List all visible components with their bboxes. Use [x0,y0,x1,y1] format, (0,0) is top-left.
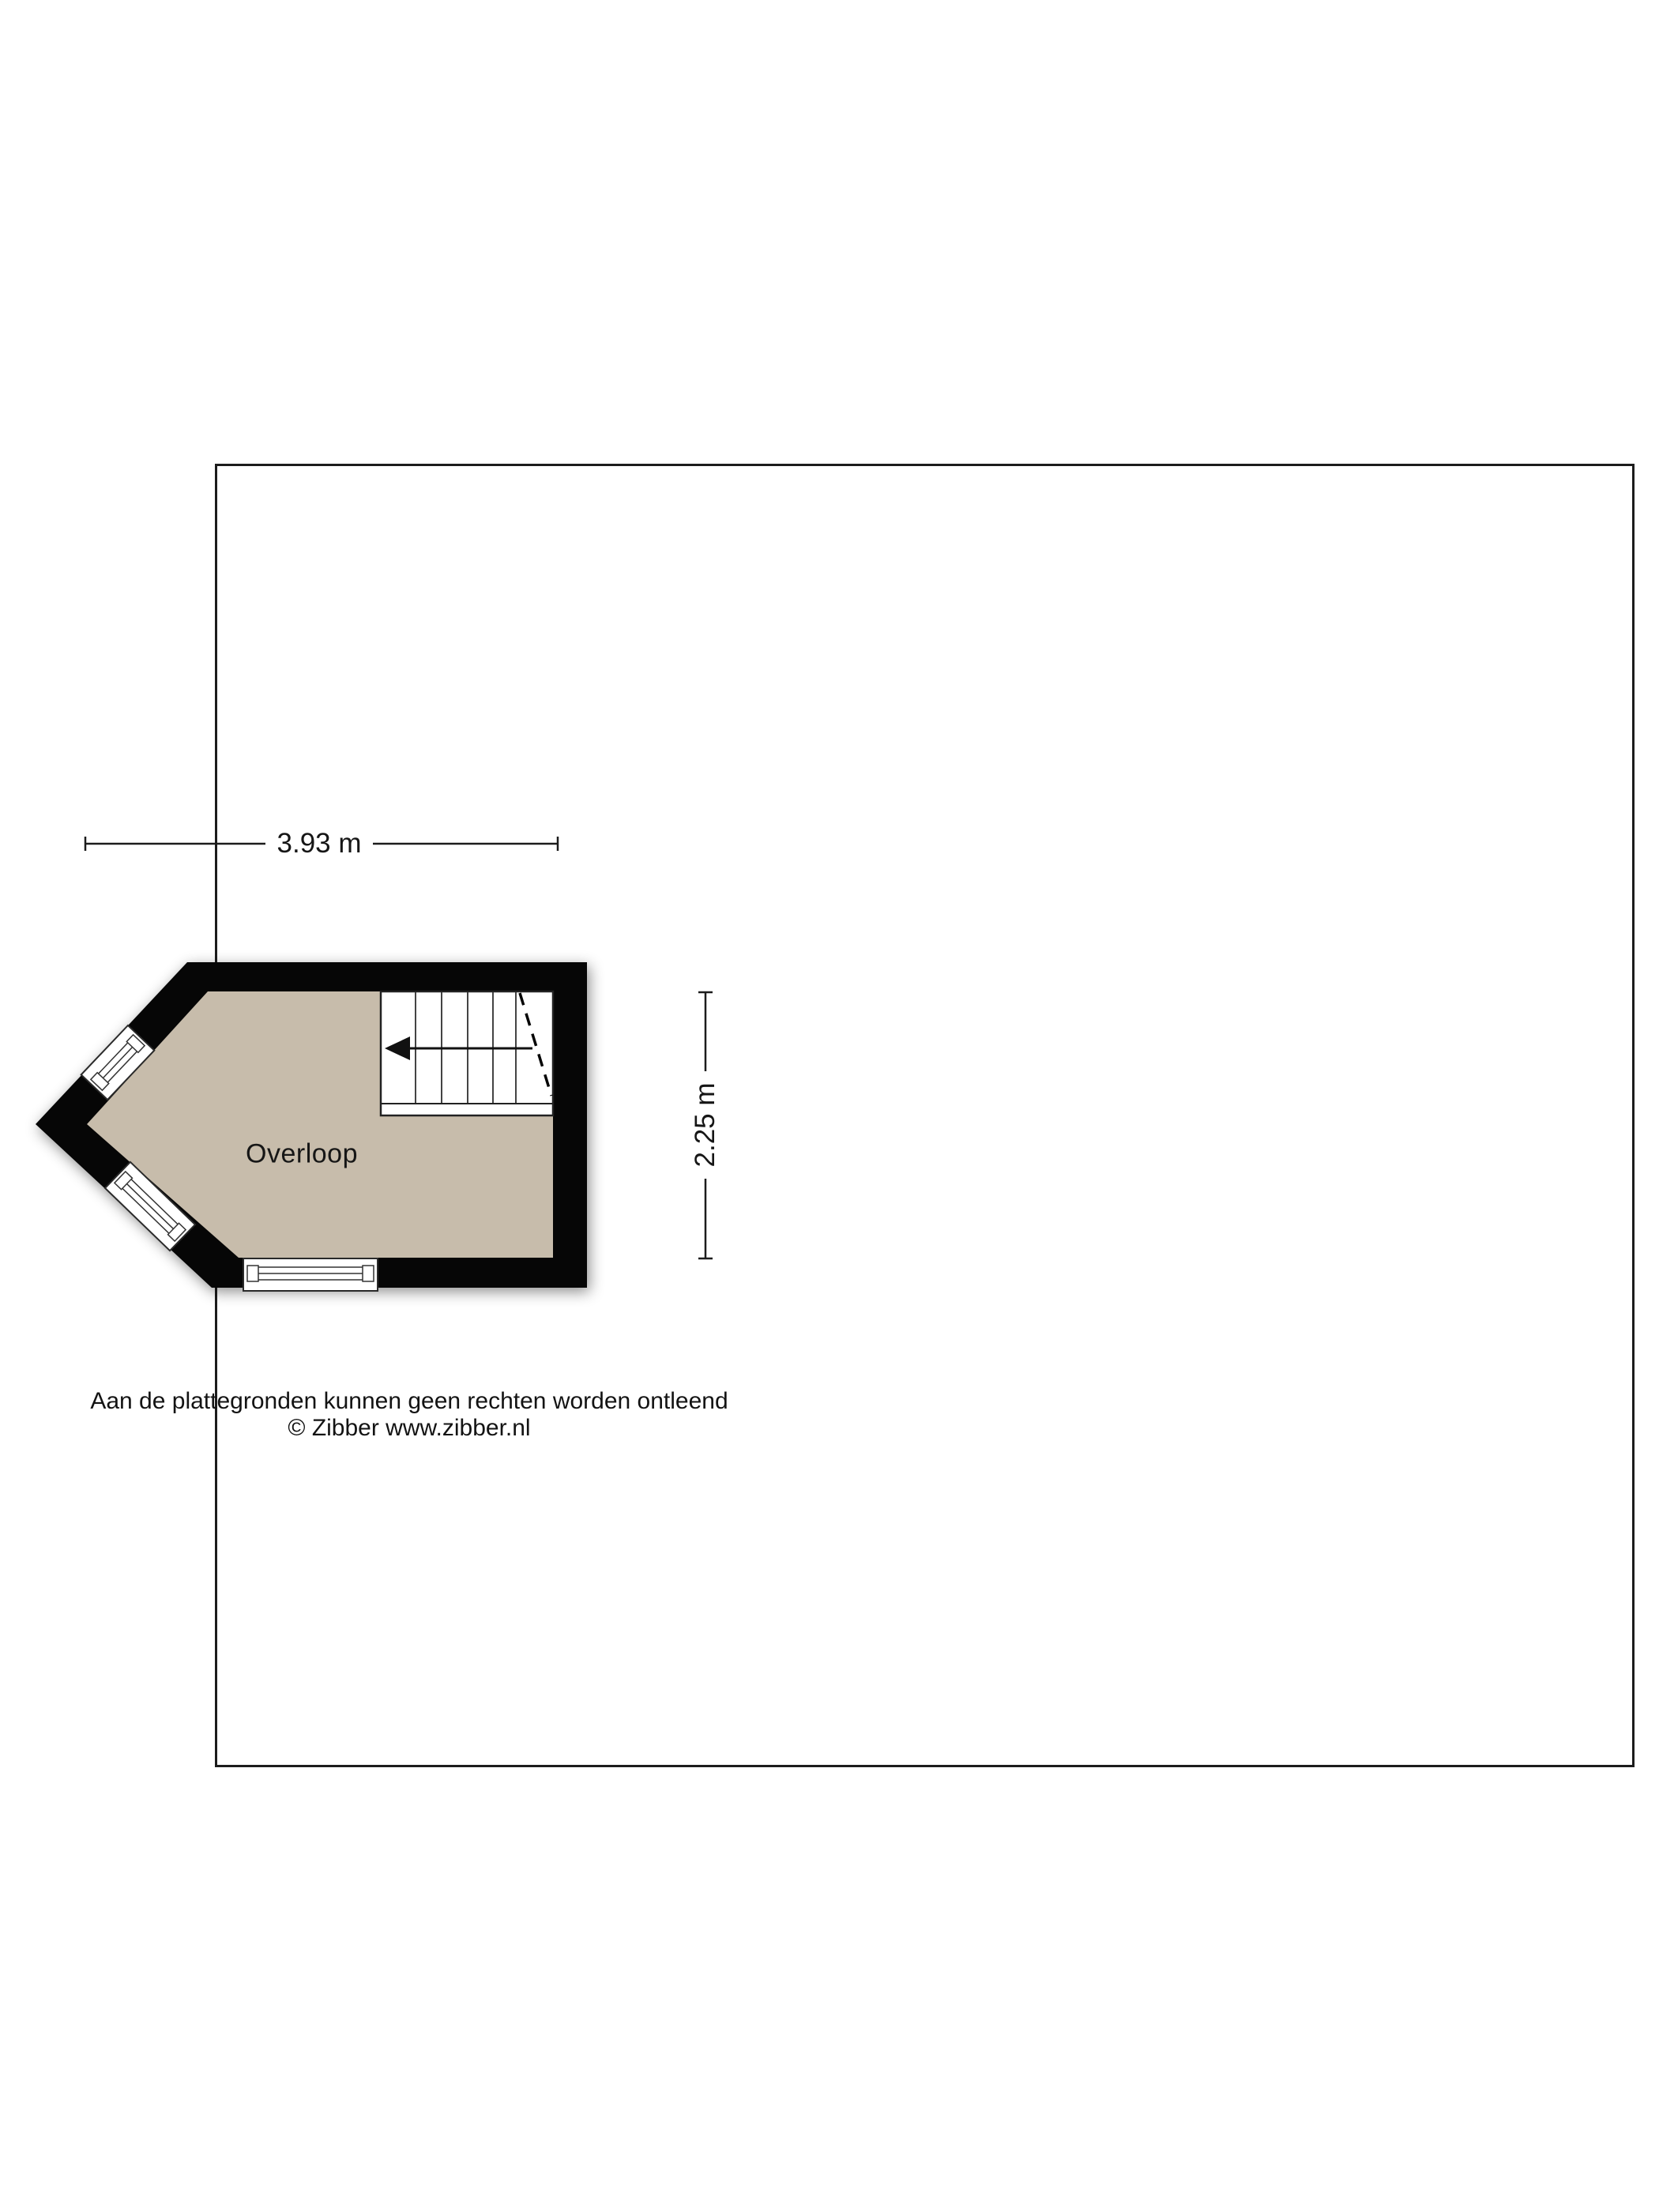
floorplan-drawing [0,0,1659,2212]
width-dimension-label: 3.93 m [277,828,362,860]
height-dimension-label: 2.25 m [690,1083,721,1168]
window-bottom [243,1258,378,1291]
floorplan-page: Overloop 3.93 m 2.25 m Aan de plattegron… [0,0,1659,2212]
copyright-text: © Zibber www.zibber.nl [90,1415,728,1442]
footer: Aan de plattegronden kunnen geen rechten… [90,1388,728,1442]
staircase [381,991,553,1115]
room-label: Overloop [246,1139,358,1170]
disclaimer-text: Aan de plattegronden kunnen geen rechten… [90,1388,728,1415]
